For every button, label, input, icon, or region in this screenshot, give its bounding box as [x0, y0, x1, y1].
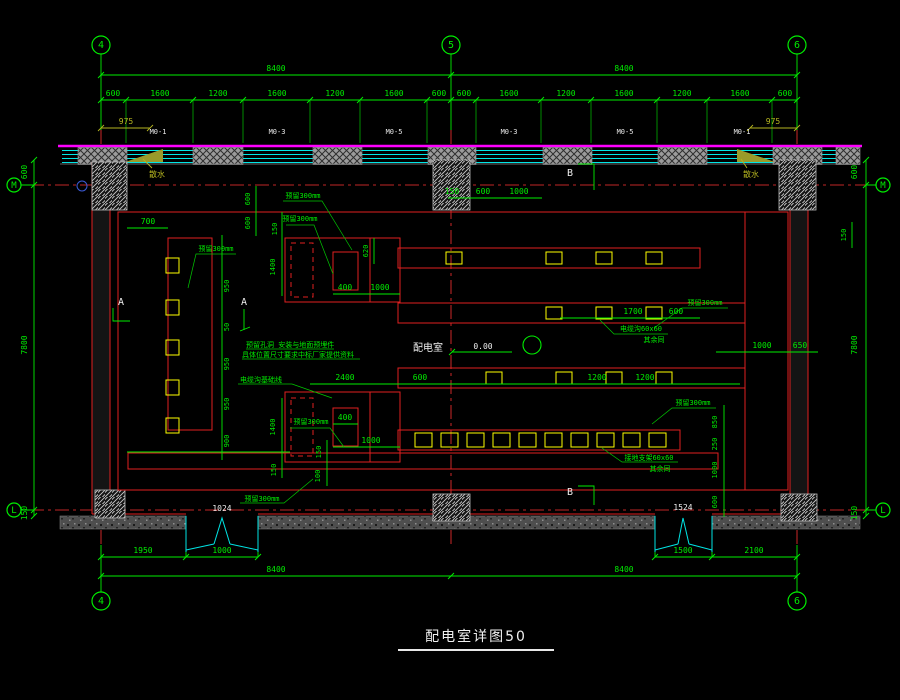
dim-label: 1400 — [269, 419, 277, 436]
dim-label: 150 — [445, 187, 460, 196]
dim-label: 1600 — [499, 89, 518, 98]
dim-label: 8400 — [266, 64, 285, 73]
dim-label: 600 — [413, 373, 428, 382]
grid-bubble-label: M — [11, 181, 17, 191]
window-tag: M0-3 — [501, 128, 518, 136]
walls — [60, 160, 860, 529]
dim-label: 2100 — [744, 546, 763, 555]
window-tag: M0-5 — [386, 128, 403, 136]
dim-label: 接地支架60x60 — [624, 453, 673, 462]
dim-label: 其余同 — [650, 464, 671, 473]
room-label: 配电室 — [413, 341, 443, 354]
columns — [92, 160, 817, 521]
dim-label: 950 — [223, 398, 231, 411]
dim-label: 900 — [223, 435, 231, 448]
dim-label: 1600 — [384, 89, 403, 98]
dim-label: 1000 — [370, 283, 389, 292]
grid-bubble-label: L — [11, 506, 16, 516]
dim-label: 850 — [711, 416, 719, 429]
drain-symbol — [77, 181, 87, 191]
dim-label: 100 — [314, 470, 322, 483]
note-line: 具体位置尺寸要求中标厂家提供资料 — [242, 350, 354, 359]
cabinet-row — [398, 248, 700, 268]
grid-bubble-label: 4 — [98, 596, 104, 607]
dim-label: 预留300mm — [687, 298, 722, 307]
dim-label: 150 — [271, 223, 279, 236]
dim-label: 600 — [669, 307, 684, 316]
level-label: 0.00 — [473, 342, 492, 351]
dim-label: 1600 — [730, 89, 749, 98]
section-marker-b: B — [567, 487, 573, 498]
dim-label: 250 — [711, 438, 719, 451]
grid-bubble-label: L — [880, 506, 885, 516]
dim-label: 50 — [223, 323, 231, 331]
dim-label: 400 — [338, 283, 353, 292]
window-tag: M0-1 — [734, 128, 751, 136]
dim-label: 8400 — [614, 64, 633, 73]
section-marker-a: A — [241, 297, 247, 308]
dim-label: 600 — [850, 165, 859, 180]
dim-label: 电缆沟60x60 — [620, 324, 662, 333]
dim-label: 预留300mm — [285, 191, 320, 200]
grid-bubble-label: 6 — [794, 596, 800, 607]
dim-label: 1200 — [325, 89, 344, 98]
dim-label: 预留300mm — [282, 214, 317, 223]
dim-label: 1600 — [267, 89, 286, 98]
dim-label: 1600 — [614, 89, 633, 98]
section-marker-a: A — [118, 297, 124, 308]
dim-label: 600 — [476, 187, 491, 196]
dim-label: 预留300mm — [244, 494, 279, 503]
window-tag: M0-3 — [269, 128, 286, 136]
dim-label: 600 — [457, 89, 472, 98]
cad-canvas: 45646MLML 840084006001600120016001200160… — [0, 0, 900, 696]
dim-label: 1500 — [673, 546, 692, 555]
drawing-title: 配电室详图50 — [398, 626, 554, 651]
dim-label: 150 — [850, 506, 859, 521]
dim-label: 150 — [315, 446, 323, 459]
dim-label: 600 — [244, 217, 252, 230]
dim-label: 600 — [106, 89, 121, 98]
door-tag: 1024 — [212, 504, 231, 513]
dim-label: 950 — [223, 280, 231, 293]
dim-label: 1200 — [587, 373, 606, 382]
grid-bubble-label: 5 — [448, 40, 454, 51]
dim-label: 1700 — [623, 307, 642, 316]
dim-label: 预留300mm — [198, 244, 233, 253]
window-tag: M0-1 — [150, 128, 167, 136]
dim-label: 150 — [20, 506, 29, 521]
dim-label: 975 — [119, 117, 134, 126]
grid-bubble-label: M — [880, 181, 886, 191]
cabinet-row-left — [168, 238, 212, 430]
dim-label: 7800 — [20, 335, 29, 354]
note-line: 预留孔洞 安装与地面预埋件 — [246, 340, 334, 349]
dim-label: 1950 — [133, 546, 152, 555]
floor-drain-circle — [523, 336, 541, 354]
dim-label: 950 — [223, 358, 231, 371]
dim-label: 150 — [270, 464, 278, 477]
apron-label: 散水 — [743, 169, 759, 179]
dim-label: 650 — [793, 341, 808, 350]
dim-label: 7800 — [850, 335, 859, 354]
dim-label: 700 — [141, 217, 156, 226]
dim-label: 1000 — [752, 341, 771, 350]
dim-label: 1200 — [556, 89, 575, 98]
dim-label: 975 — [766, 117, 781, 126]
dim-label: 600 — [20, 165, 29, 180]
grid-bubble-label: 6 — [794, 40, 800, 51]
dim-label: 2400 — [335, 373, 354, 382]
dim-label: 其余同 — [644, 335, 665, 344]
dim-label: 600 — [432, 89, 447, 98]
dim-label: 8400 — [266, 565, 285, 574]
dim-label: 预留300mm — [675, 398, 710, 407]
window-tag: M0-5 — [617, 128, 634, 136]
dim-label: 600 — [244, 193, 252, 206]
dim-label: 400 — [338, 413, 353, 422]
dim-label: 1000 — [212, 546, 231, 555]
dim-label: 预留300mm — [293, 417, 328, 426]
grid-bubble-label: 4 — [98, 40, 104, 51]
cad-viewport: { "title": {"text": "配电室详图50"}, "colors"… — [0, 0, 900, 696]
note-label: 电缆沟基础线 — [240, 375, 282, 384]
dim-label: 1000 — [509, 187, 528, 196]
dim-label: 1200 — [672, 89, 691, 98]
dim-label: 1000 — [711, 462, 719, 479]
dim-label: 1400 — [269, 259, 277, 276]
dim-label: 600 — [711, 496, 719, 509]
apron-label: 散水 — [149, 169, 165, 179]
dim-label: 1600 — [150, 89, 169, 98]
dim-label: 620 — [362, 245, 370, 258]
dim-label: 600 — [778, 89, 793, 98]
dim-label: 8400 — [614, 565, 633, 574]
section-marker-b: B — [567, 168, 573, 179]
dim-label: 1000 — [361, 436, 380, 445]
dim-label: 1200 — [208, 89, 227, 98]
dim-label: 150 — [840, 229, 848, 242]
door-tag: 1524 — [673, 503, 692, 512]
dim-label: 1200 — [635, 373, 654, 382]
